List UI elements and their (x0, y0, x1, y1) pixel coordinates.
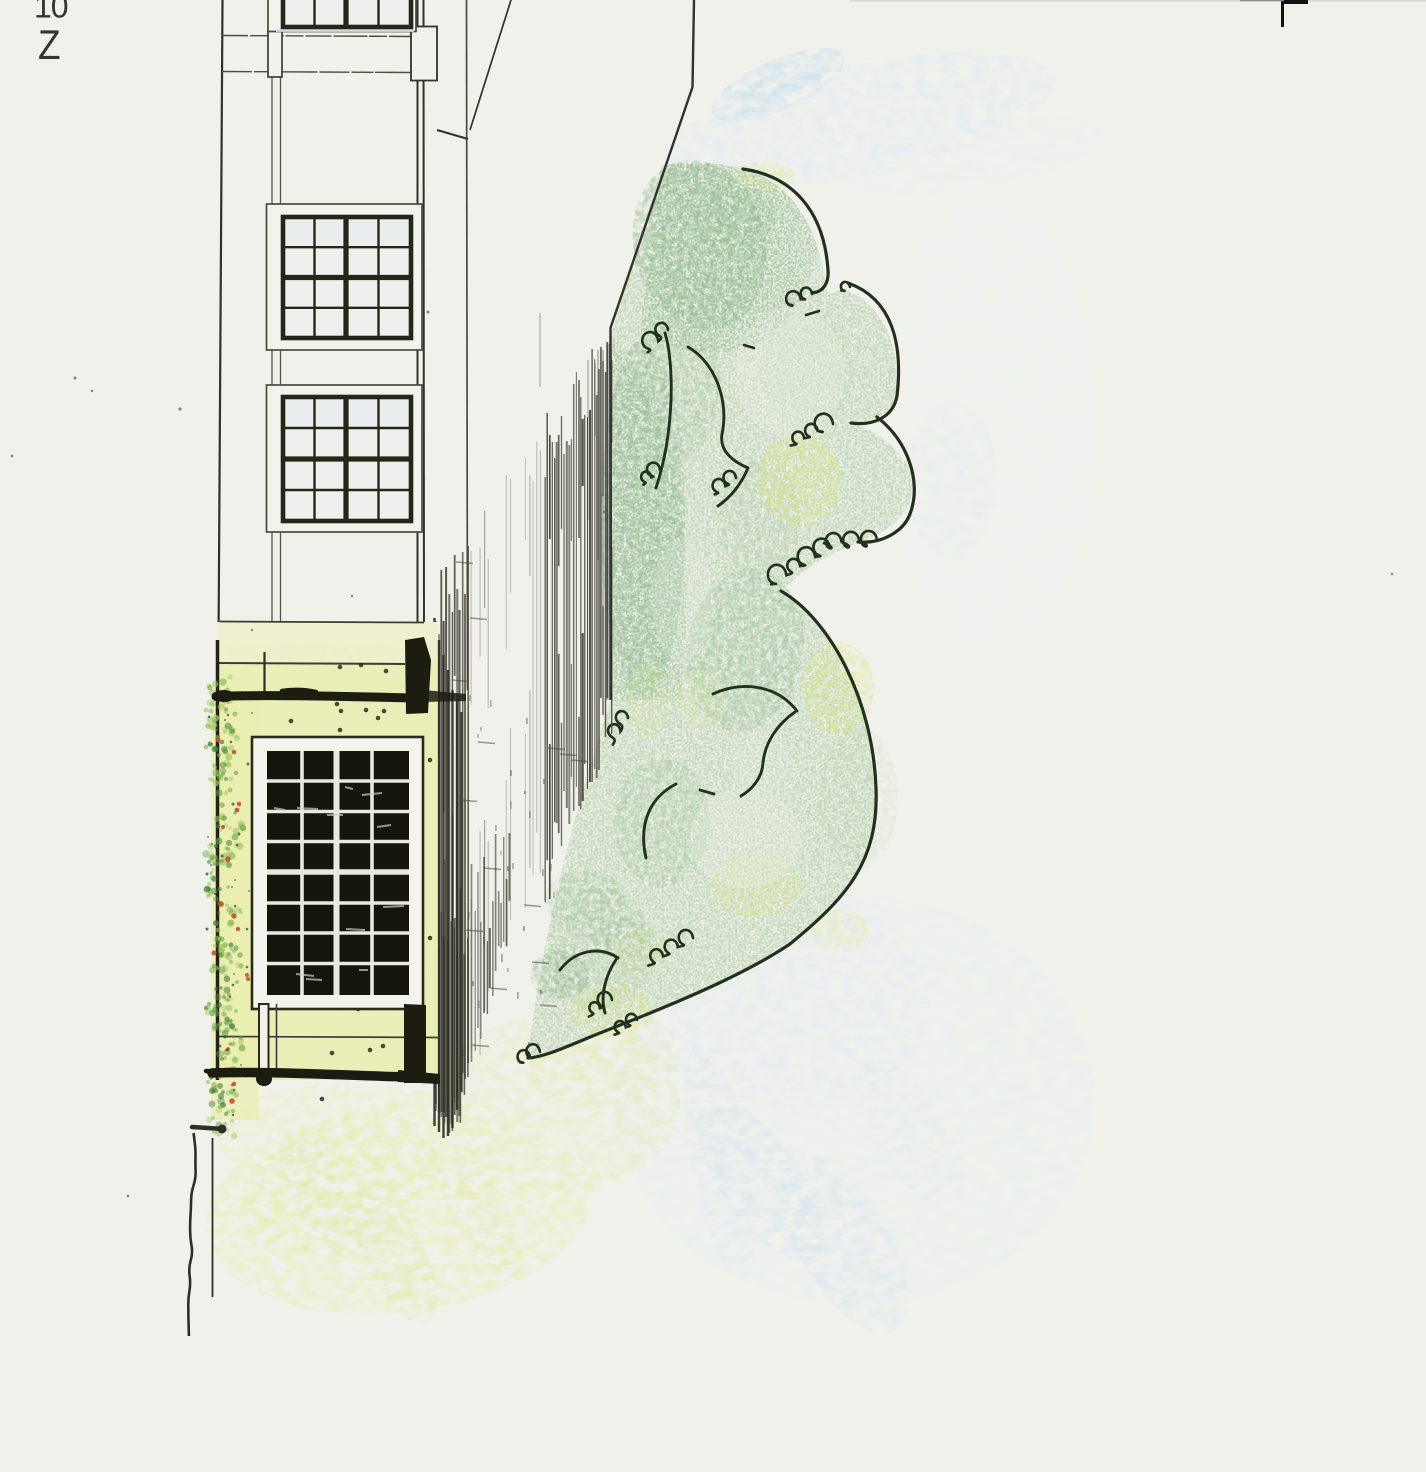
svg-text:Z: Z (38, 22, 61, 69)
svg-text:10: 10 (34, 0, 68, 25)
